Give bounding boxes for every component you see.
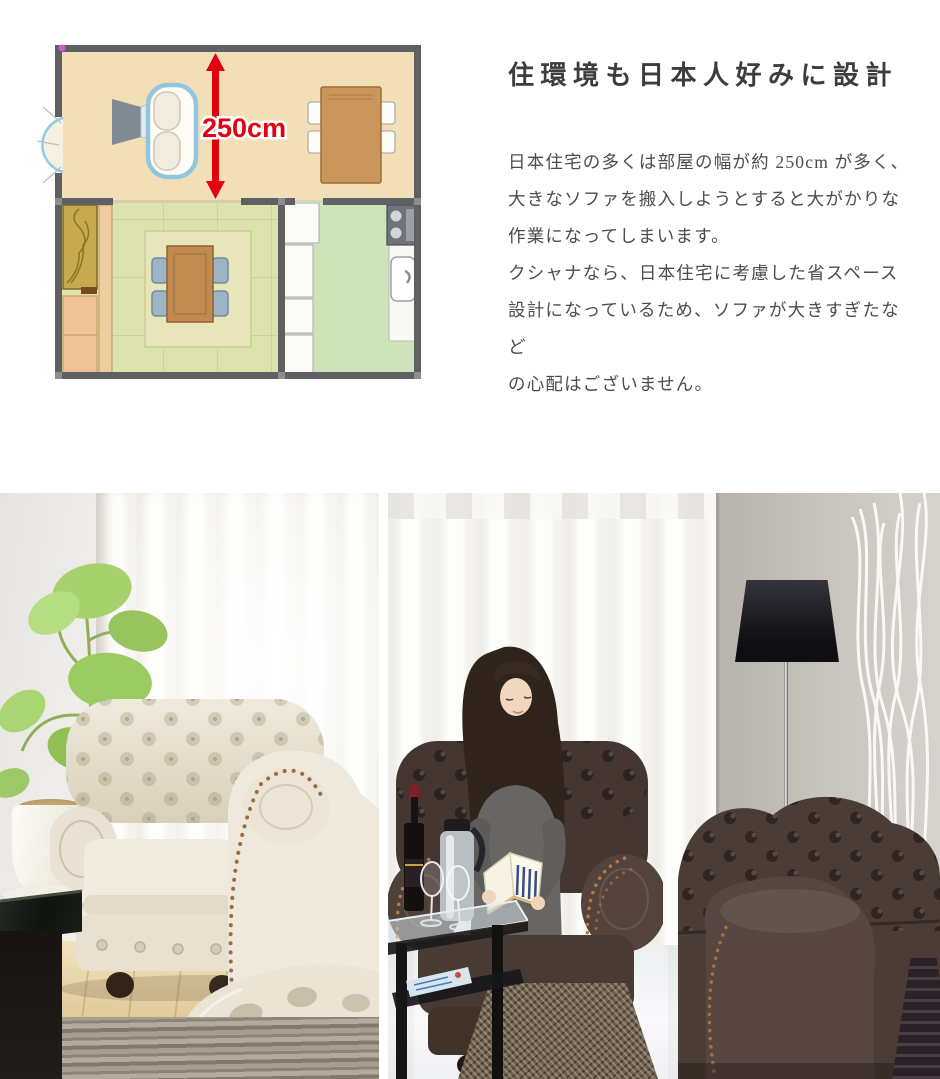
woman-face bbox=[500, 678, 532, 716]
black-side-table bbox=[0, 931, 62, 1079]
dimension-label: 250cm bbox=[202, 113, 286, 143]
photo-woman-reading bbox=[388, 493, 940, 1079]
page: 250cm 住環境も日本人好みに設計 日本住宅の多くは部屋の幅が約 250cm … bbox=[0, 0, 940, 1079]
floorplan-sofa bbox=[148, 85, 196, 177]
glass-coffee-table bbox=[388, 783, 528, 1079]
section-body-text: 日本住宅の多くは部屋の幅が約 250cm が多く、 大きなソファを搬入しようとす… bbox=[508, 144, 918, 403]
floorplan-stove bbox=[387, 205, 417, 245]
curtain-pleats bbox=[388, 493, 718, 519]
floorplan-marker-dot bbox=[59, 45, 66, 52]
feature-copy: 住環境も日本人好みに設計 日本住宅の多くは部屋の幅が約 250cm が多く、 大… bbox=[508, 58, 918, 403]
section-heading: 住環境も日本人好みに設計 bbox=[508, 58, 918, 94]
sofa-foot bbox=[106, 972, 134, 998]
floorplan-entry-door bbox=[37, 107, 63, 183]
floorplan-svg: 250cm bbox=[55, 45, 421, 379]
floorplan-diagram: 250cm bbox=[55, 45, 421, 379]
photo-gallery bbox=[0, 493, 940, 1079]
feature-section: 250cm 住環境も日本人好みに設計 日本住宅の多くは部屋の幅が約 250cm … bbox=[0, 0, 940, 493]
wine-bottle bbox=[404, 785, 424, 911]
floorplan-sink bbox=[391, 257, 415, 301]
photo-ivory-sofa bbox=[0, 493, 379, 1079]
